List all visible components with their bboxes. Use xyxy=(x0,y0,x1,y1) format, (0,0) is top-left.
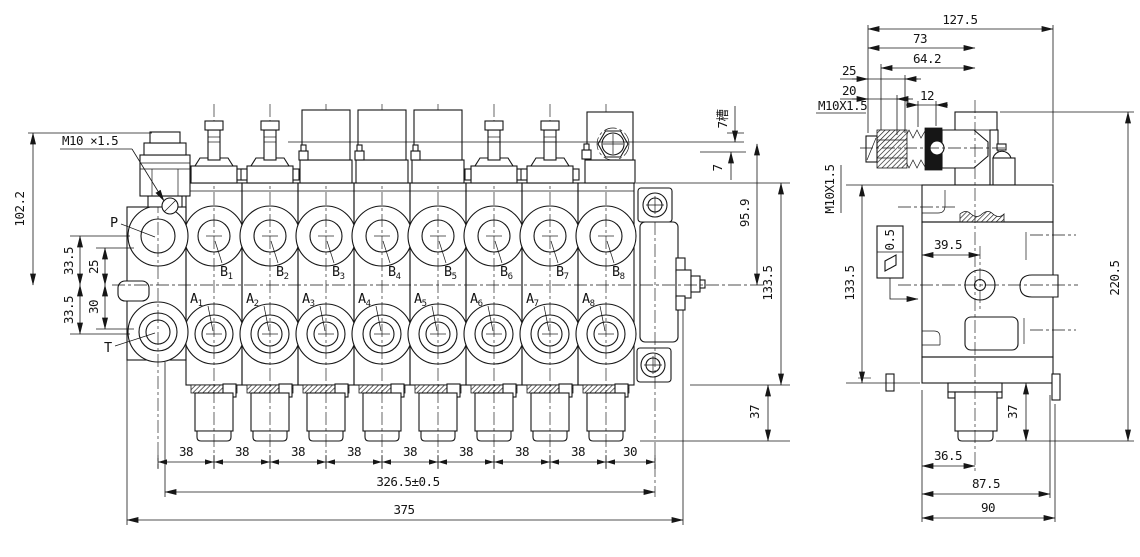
bracket-right xyxy=(1052,374,1060,400)
port-label-a3: A3 xyxy=(302,291,315,309)
flatness-tolerance-frame: 0.5 xyxy=(877,226,918,299)
side-bottom-dimensions: 220.5 37 36.5 87.5 90 xyxy=(922,112,1134,522)
port-label-b1: B1 xyxy=(220,264,233,282)
dim-73: 73 xyxy=(913,31,927,46)
pitch-dim-1: 38 xyxy=(179,444,193,459)
dim-overall-width: 375 xyxy=(393,502,414,517)
port-label-b4: B4 xyxy=(388,264,401,282)
thread-zigzag xyxy=(905,130,925,168)
dim-36: 36.5 xyxy=(934,448,962,463)
spool-stem-6 xyxy=(465,121,523,183)
pilot-body xyxy=(993,158,1015,185)
pitch-dim-7: 38 xyxy=(515,444,529,459)
bottom-flange xyxy=(922,357,1053,383)
port-label-b5: B5 xyxy=(444,264,457,282)
side-view: 127.5 73 64.2 25 20 M10X1.5 12 M10X1.5 1… xyxy=(816,12,1134,522)
adjust-stud xyxy=(877,130,907,168)
dim-p-offset: 33.5 xyxy=(61,247,76,275)
side-body xyxy=(858,100,1078,472)
dim-t-inner: 30 xyxy=(86,300,101,314)
lever-clevis xyxy=(942,130,988,168)
dim-t-offset: 33.5 xyxy=(61,296,76,324)
spool-stem-1 xyxy=(185,121,243,183)
front-right-dimensions: 7槽 7 95.9 133.5 37 xyxy=(710,106,781,441)
port-label-a2: A2 xyxy=(246,291,259,309)
port-label-b7: B7 xyxy=(556,264,569,282)
dim-p-inner: 25 xyxy=(86,260,101,274)
pitch-dim-2: 38 xyxy=(235,444,249,459)
port-label-a6: A6 xyxy=(470,291,483,309)
end-plate xyxy=(637,188,705,497)
dim-height: 220.5 xyxy=(1107,260,1122,295)
pitch-dim-3: 38 xyxy=(291,444,305,459)
pitch-dim-4: 38 xyxy=(347,444,361,459)
flatness-value: 0.5 xyxy=(882,229,897,250)
inlet-block xyxy=(118,132,190,468)
dim-span: 326.5±0.5 xyxy=(376,474,439,489)
side-tab xyxy=(1020,275,1058,297)
solenoid-cap-5 xyxy=(411,110,464,183)
dim-slot-lower: 7 xyxy=(710,164,725,171)
dim-overall-height: 102.2 xyxy=(12,191,27,226)
bracket-plate xyxy=(640,222,678,342)
dim-64: 64.2 xyxy=(913,51,941,66)
port-label-a4: A4 xyxy=(358,291,371,309)
end-cap-8 xyxy=(582,112,635,183)
front-view: 102.2 33.5 25 33.5 30 M10 ×1.5 P T 7槽 7 … xyxy=(12,104,790,525)
dim-20: 20 xyxy=(842,83,856,98)
dim-12: 12 xyxy=(920,88,934,103)
dim-total-depth: 127.5 xyxy=(942,12,977,27)
thread-callout: M10 ×1.5 xyxy=(62,133,118,148)
thread-callout-side: M10X1.5 xyxy=(822,164,837,213)
drawing-canvas: 102.2 33.5 25 33.5 30 M10 ×1.5 P T 7槽 7 … xyxy=(0,0,1140,557)
solenoid-cap-4 xyxy=(355,110,408,183)
port-label-a5: A5 xyxy=(414,291,427,309)
relief-valve xyxy=(140,132,190,214)
end-pitch-dim: 30 xyxy=(623,444,637,459)
thread-callout-top: M10X1.5 xyxy=(818,98,867,113)
dim-133: 133.5 xyxy=(842,265,857,300)
pitch-dim-6: 38 xyxy=(459,444,473,459)
port-label-a7: A7 xyxy=(526,291,539,309)
spool-stem-7 xyxy=(521,121,579,183)
rail-clamp xyxy=(676,258,705,310)
spool-stem-2 xyxy=(241,121,299,183)
port-label-b8: B8 xyxy=(612,264,625,282)
port-label-b6: B6 xyxy=(500,264,513,282)
port-label-a1: A1 xyxy=(190,291,203,309)
dim-90: 90 xyxy=(981,500,995,515)
pitch-dim-8: 38 xyxy=(571,444,585,459)
technical-drawing: 102.2 33.5 25 33.5 30 M10 ×1.5 P T 7槽 7 … xyxy=(0,0,1140,557)
dim-37: 37 xyxy=(1005,405,1020,419)
p-port-label: P xyxy=(110,215,118,231)
dim-plug-height: 37 xyxy=(747,405,762,419)
port-boss-side xyxy=(965,317,1018,350)
dim-39: 39.5 xyxy=(934,237,962,252)
port-label-b2: B2 xyxy=(276,264,289,282)
side-notch xyxy=(118,281,149,301)
dim-25: 25 xyxy=(842,63,856,78)
dim-body-height: 95.9 xyxy=(737,199,752,227)
pitch-dim-5: 38 xyxy=(403,444,417,459)
dim-slot-depth: 7槽 xyxy=(715,109,730,128)
bracket-left xyxy=(886,374,894,391)
t-port-label: T xyxy=(104,340,112,356)
bottom-plug xyxy=(955,392,997,431)
port-label-b3: B3 xyxy=(332,264,345,282)
port-label-a8: A8 xyxy=(582,291,595,309)
valve-sections xyxy=(184,104,636,468)
dim-87: 87.5 xyxy=(972,476,1000,491)
solenoid-cap-3 xyxy=(299,110,352,183)
dim-height-133: 133.5 xyxy=(760,265,775,300)
